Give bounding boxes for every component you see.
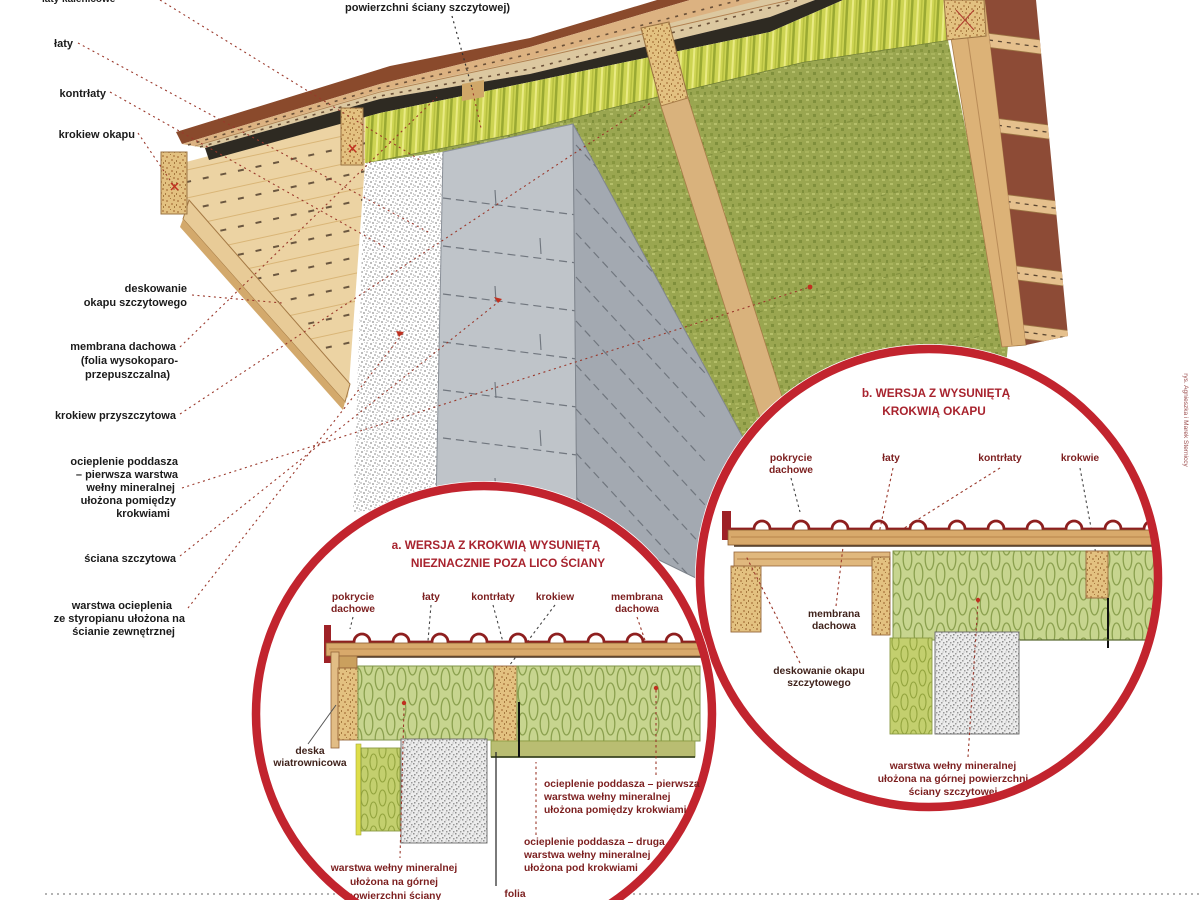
svg-text:powierzchni ściany: powierzchni ściany [347,891,442,900]
svg-text:dachowa: dachowa [615,604,659,615]
svg-text:łaty: łaty [54,38,74,50]
svg-text:krokiew przyszczytowa: krokiew przyszczytowa [55,410,177,422]
svg-text:deska: deska [295,746,324,757]
svg-text:deskowanie okapu: deskowanie okapu [773,666,865,677]
svg-text:– pierwsza warstwa: – pierwsza warstwa [76,469,179,481]
svg-text:ułożona na górnej powierzchni: ułożona na górnej powierzchni [878,774,1029,785]
svg-text:przepuszczalna): przepuszczalna) [85,369,170,381]
svg-text:membrana: membrana [808,609,860,620]
svg-text:pokrycie: pokrycie [770,453,813,464]
svg-text:łaty: łaty [422,592,440,603]
svg-text:warstwa wełny mineralnej: warstwa wełny mineralnej [543,792,671,803]
svg-text:wiatrownicowa: wiatrownicowa [272,758,347,769]
svg-text:ocieplenie poddasza – pierwsza: ocieplenie poddasza – pierwsza [544,779,700,790]
svg-text:KROKWIĄ OKAPU: KROKWIĄ OKAPU [882,404,986,418]
svg-text:krokwiami: krokwiami [116,508,170,520]
svg-text:ściana szczytowa: ściana szczytowa [84,553,177,565]
svg-text:ocieplenie poddasza – druga: ocieplenie poddasza – druga [524,837,665,848]
svg-text:ułożona na górnej: ułożona na górnej [350,877,438,888]
svg-text:membrana: membrana [611,592,663,603]
svg-text:(folia wysokoparo-: (folia wysokoparo- [81,355,179,367]
svg-text:dachowe: dachowe [331,604,375,615]
svg-text:kontrłaty: kontrłaty [60,88,107,100]
svg-text:kontrłaty: kontrłaty [471,592,515,603]
svg-text:folia: folia [504,889,525,900]
svg-text:dachowa: dachowa [812,621,856,632]
svg-text:ze styropianu ułożona na: ze styropianu ułożona na [54,613,186,625]
svg-text:ocieplenie poddasza: ocieplenie poddasza [70,456,178,468]
svg-text:rys. Agnieszka i Marek Sternic: rys. Agnieszka i Marek Sterniccy [1182,373,1189,467]
svg-text:b. WERSJA Z WYSUNIĘTĄ: b. WERSJA Z WYSUNIĘTĄ [862,386,1011,400]
svg-text:krokwie: krokwie [1061,453,1100,464]
svg-text:łaty: łaty [882,453,900,464]
svg-text:ułożona pomiędzy krokwiami: ułożona pomiędzy krokwiami [544,805,687,816]
svg-text:warstwa wełny mineralnej: warstwa wełny mineralnej [889,761,1017,772]
svg-text:ścianie zewnętrznej: ścianie zewnętrznej [72,626,175,638]
svg-text:szczytowego: szczytowego [787,678,851,689]
svg-text:powierzchni ściany szczytowej): powierzchni ściany szczytowej) [345,2,510,14]
svg-text:dachowe: dachowe [769,465,813,476]
svg-text:a. WERSJA Z KROKWIĄ WYSUNIĘTĄ: a. WERSJA Z KROKWIĄ WYSUNIĘTĄ [392,538,601,552]
svg-text:ułożona pomiędzy: ułożona pomiędzy [81,495,177,507]
svg-text:ułożona pod krokwiami: ułożona pod krokwiami [524,863,638,874]
svg-text:łaty kalenicowe: łaty kalenicowe [42,0,116,5]
svg-text:deskowanie: deskowanie [125,283,187,295]
svg-text:pokrycie: pokrycie [332,592,375,603]
svg-text:kontrłaty: kontrłaty [978,453,1022,464]
svg-text:membrana dachowa: membrana dachowa [70,341,177,353]
svg-text:wełny mineralnej: wełny mineralnej [85,482,175,494]
svg-text:warstwa wełny mineralnej: warstwa wełny mineralnej [523,850,651,861]
svg-text:okapu szczytowego: okapu szczytowego [84,297,188,309]
svg-text:warstwa wełny mineralnej: warstwa wełny mineralnej [330,863,458,874]
svg-text:warstwa ocieplenia: warstwa ocieplenia [71,600,173,612]
svg-text:NIEZNACZNIE POZA LICO ŚCIANY: NIEZNACZNIE POZA LICO ŚCIANY [411,556,605,570]
svg-text:krokiew okapu: krokiew okapu [59,129,135,141]
svg-text:krokiew: krokiew [536,592,575,603]
